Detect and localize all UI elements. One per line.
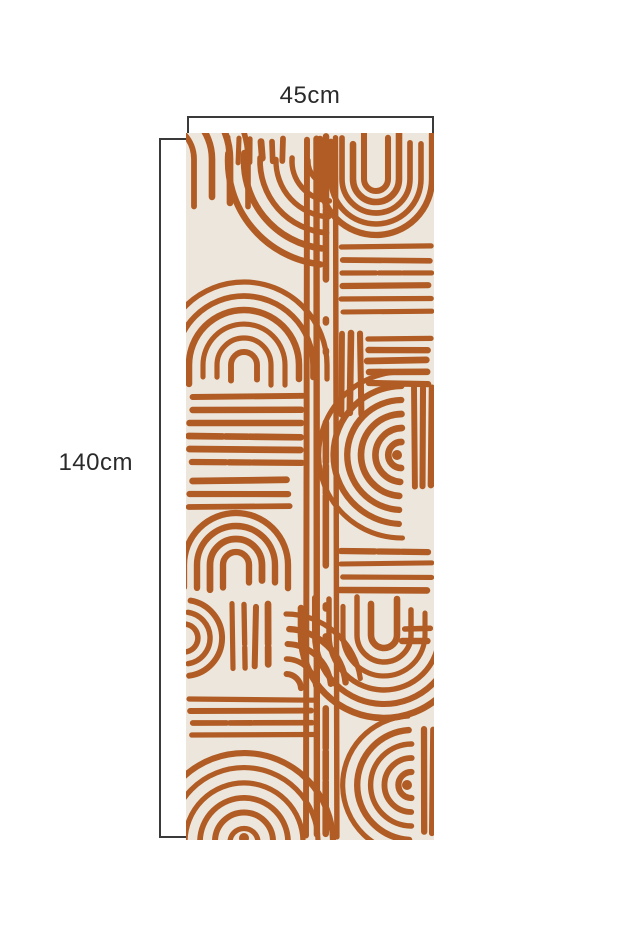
height-dimension-label: 140cm [20, 449, 133, 477]
width-dimension-line [187, 116, 434, 118]
product-dimension-diagram: 45cm 140cm [0, 0, 621, 931]
width-dimension-cap-left [187, 116, 189, 133]
pattern-svg [186, 133, 434, 840]
height-dimension-cap-top [159, 138, 186, 140]
width-dimension-label: 45cm [186, 82, 434, 110]
wallpaper-panel [186, 133, 434, 840]
height-dimension-line [159, 138, 161, 838]
height-dimension-cap-bottom [159, 836, 186, 838]
width-dimension-cap-right [432, 116, 434, 133]
